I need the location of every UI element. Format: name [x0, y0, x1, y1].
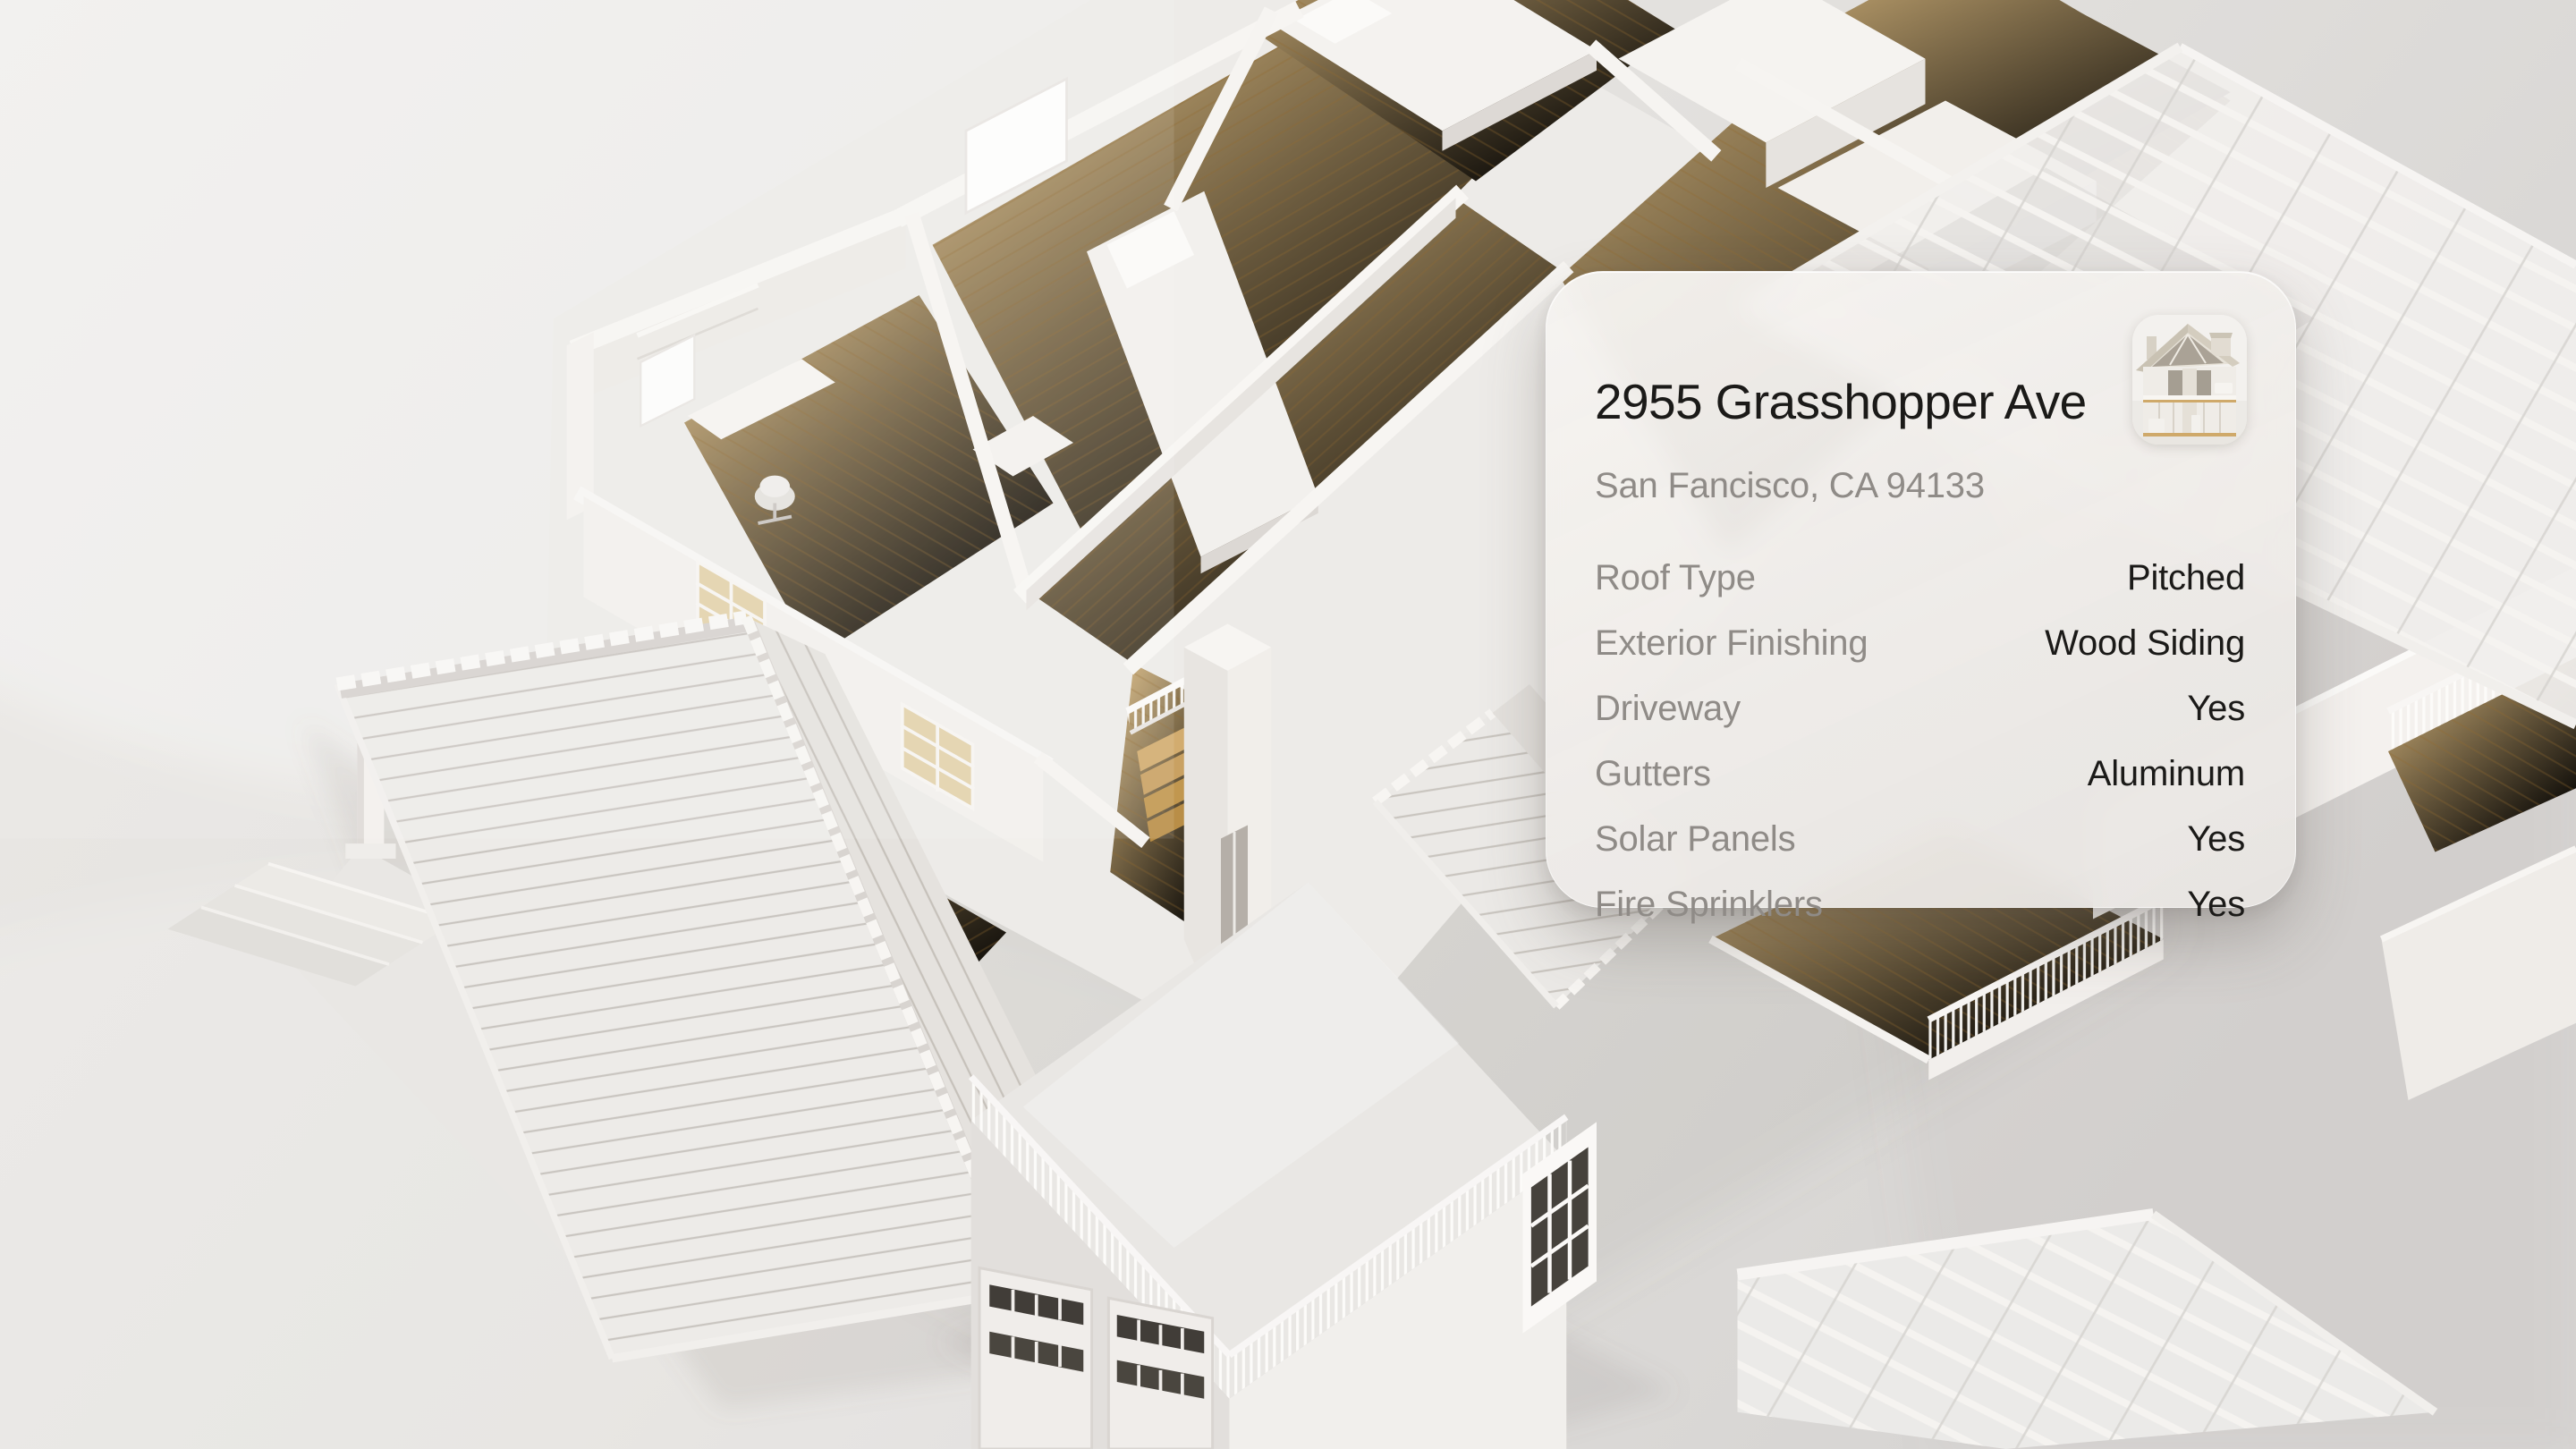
- detail-label: Solar Panels: [1595, 819, 1795, 860]
- property-city-subtitle: San Fancisco, CA 94133: [1595, 463, 2245, 508]
- detail-label: Exterior Finishing: [1595, 623, 1868, 664]
- detail-row-gutters: Gutters Aluminum: [1595, 741, 2245, 807]
- garage-door: [979, 1268, 1092, 1449]
- property-details-list: Roof Type Pitched Exterior Finishing Woo…: [1595, 546, 2245, 937]
- detail-row-solar-panels: Solar Panels Yes: [1595, 807, 2245, 872]
- screen: 2955 Grasshopper Ave San Fancisco, CA 94…: [0, 0, 2576, 1449]
- detail-label: Gutters: [1595, 754, 1711, 794]
- detail-row-roof-type: Roof Type Pitched: [1595, 546, 2245, 611]
- detail-row-driveway: Driveway Yes: [1595, 676, 2245, 741]
- detail-row-fire-sprinklers: Fire Sprinklers Yes: [1595, 872, 2245, 937]
- detail-label: Roof Type: [1595, 558, 1756, 598]
- property-info-card[interactable]: 2955 Grasshopper Ave San Fancisco, CA 94…: [1546, 271, 2296, 908]
- detail-label: Fire Sprinklers: [1595, 885, 1823, 925]
- detail-row-exterior-finishing: Exterior Finishing Wood Siding: [1595, 611, 2245, 676]
- detail-value: Yes: [2187, 819, 2245, 860]
- detail-label: Driveway: [1595, 689, 1741, 729]
- garage-door: [1108, 1298, 1212, 1449]
- detail-value: Wood Siding: [2045, 623, 2245, 664]
- house-thumbnail-icon: [2132, 315, 2247, 445]
- detail-value: Aluminum: [2088, 754, 2245, 794]
- detail-value: Pitched: [2127, 558, 2245, 598]
- detail-value: Yes: [2187, 885, 2245, 925]
- house-cross-section-icon: [2132, 315, 2247, 445]
- detail-value: Yes: [2187, 689, 2245, 729]
